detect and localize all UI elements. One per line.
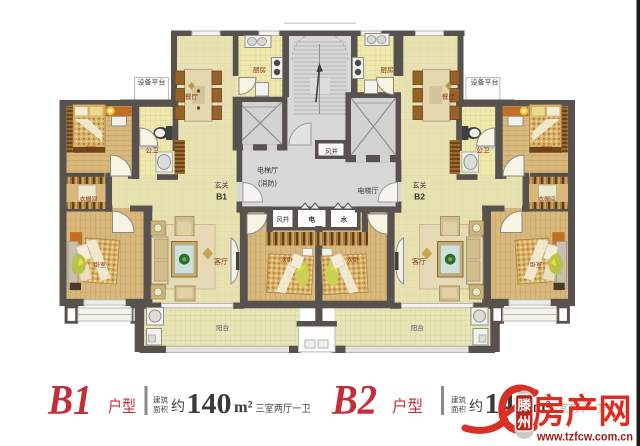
svg-text:B2: B2 [331, 378, 377, 424]
svg-text:衣帽间: 衣帽间 [538, 195, 556, 203]
svg-text:滕: 滕 [518, 398, 532, 413]
svg-text:餐厅: 餐厅 [442, 92, 456, 101]
svg-text:阳台: 阳台 [216, 323, 229, 332]
svg-text:公卫: 公卫 [477, 147, 491, 155]
svg-text:卧室: 卧室 [94, 261, 106, 269]
svg-text:次卧: 次卧 [347, 256, 359, 264]
svg-text:玄关: 玄关 [215, 181, 229, 190]
svg-text:房产网: 房产网 [533, 393, 632, 431]
svg-text:(消防): (消防) [258, 179, 277, 188]
svg-text:水: 水 [341, 215, 348, 224]
svg-text:面积: 面积 [153, 404, 168, 414]
svg-text:客厅: 客厅 [412, 257, 426, 266]
svg-text:www.tzfcw.com.cn: www.tzfcw.com.cn [536, 430, 633, 444]
svg-text:卧室: 卧室 [530, 261, 542, 269]
svg-text:140: 140 [187, 388, 232, 420]
svg-text:m²: m² [234, 399, 253, 416]
svg-text:约: 约 [469, 398, 483, 414]
svg-text:约: 约 [171, 398, 185, 414]
svg-text:B2: B2 [414, 192, 425, 202]
svg-text:三室两厅一卫: 三室两厅一卫 [256, 402, 311, 415]
svg-text:建筑: 建筑 [153, 395, 168, 405]
svg-text:B1: B1 [216, 192, 227, 202]
svg-text:次卧: 次卧 [281, 256, 293, 264]
svg-text:衣帽间: 衣帽间 [80, 195, 98, 203]
svg-text:风井: 风井 [325, 147, 339, 156]
svg-text:风井: 风井 [276, 215, 290, 224]
svg-text:设备平台: 设备平台 [471, 78, 499, 87]
svg-text:电梯厅: 电梯厅 [358, 186, 379, 195]
svg-text:阳台: 阳台 [411, 323, 424, 332]
svg-text:玄关: 玄关 [413, 181, 427, 190]
svg-text:建筑: 建筑 [451, 395, 466, 405]
svg-text:厨房: 厨房 [381, 65, 394, 74]
svg-text:客厅: 客厅 [214, 257, 228, 266]
svg-text:电梯厅: 电梯厅 [257, 166, 278, 175]
svg-text:电: 电 [309, 215, 316, 224]
svg-text:B1: B1 [47, 378, 92, 424]
svg-text:次卧: 次卧 [541, 145, 553, 153]
svg-text:餐厅: 餐厅 [185, 92, 199, 101]
svg-text:设备平台: 设备平台 [138, 78, 166, 87]
svg-text:户型: 户型 [392, 397, 423, 416]
svg-text:厨房: 厨房 [253, 65, 266, 74]
svg-text:面积: 面积 [451, 404, 466, 414]
svg-text:次卧: 次卧 [85, 145, 97, 153]
svg-text:公卫: 公卫 [146, 147, 160, 155]
svg-text:州: 州 [517, 415, 532, 430]
svg-text:户型: 户型 [108, 397, 136, 416]
